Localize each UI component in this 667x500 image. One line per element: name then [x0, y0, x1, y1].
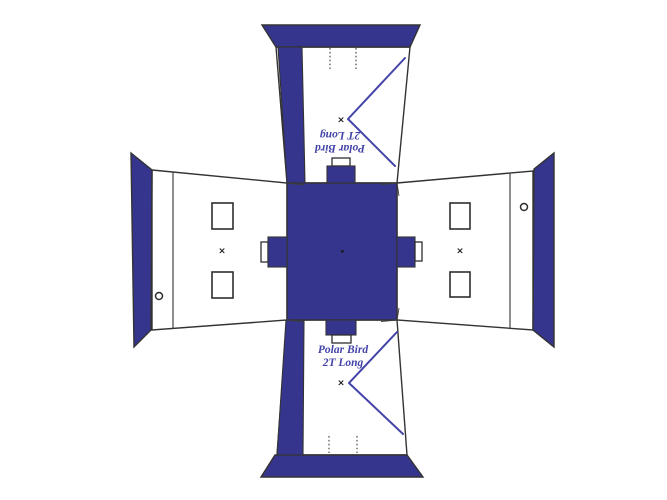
bottom-flap-side-gusset: [277, 320, 304, 455]
right-tab-loop: [415, 242, 422, 261]
center-mark-icon: ×: [337, 116, 345, 126]
right-window-cutout: [450, 272, 470, 297]
brand-label: Polar Bird 2T Long: [298, 344, 388, 369]
top-flap-end-cap: [262, 25, 420, 47]
brand-label-line1: Polar Bird: [295, 142, 385, 155]
grommet-icon: [521, 204, 528, 211]
center-mark-icon: ×: [456, 247, 464, 257]
brand-label-line1: Polar Bird: [298, 344, 388, 357]
left-tab: [268, 237, 287, 267]
left-tab-loop: [261, 242, 268, 262]
center-mark-icon: ×: [218, 247, 226, 257]
grommet-icon: [156, 293, 163, 300]
bottom-flap-end-cap: [261, 455, 423, 477]
right-window-cutout: [450, 203, 470, 229]
brand-label-line2: 2T Long: [298, 357, 388, 370]
right-tab: [397, 237, 415, 267]
center-mark-icon: ×: [337, 379, 345, 389]
bottom-tab-loop: [332, 335, 351, 343]
center-dot: [341, 250, 344, 253]
top-flap-side-gusset: [278, 47, 305, 183]
top-tab: [327, 166, 355, 183]
bottom-tab: [326, 320, 356, 335]
left-window-cutout: [212, 272, 233, 298]
top-tab-loop: [332, 158, 350, 166]
tent-pattern-drawing: × × × ×: [0, 0, 667, 500]
left-flap-end-cap: [131, 153, 152, 347]
brand-label-line2: 2T Long: [295, 129, 385, 142]
tent-pattern-canvas: × × × × Polar Bird 2T Long Polar Bird 2T…: [0, 0, 667, 500]
brand-label-rotated: Polar Bird 2T Long: [295, 129, 385, 154]
left-window-cutout: [212, 203, 233, 229]
right-flap-end-cap: [533, 153, 554, 347]
